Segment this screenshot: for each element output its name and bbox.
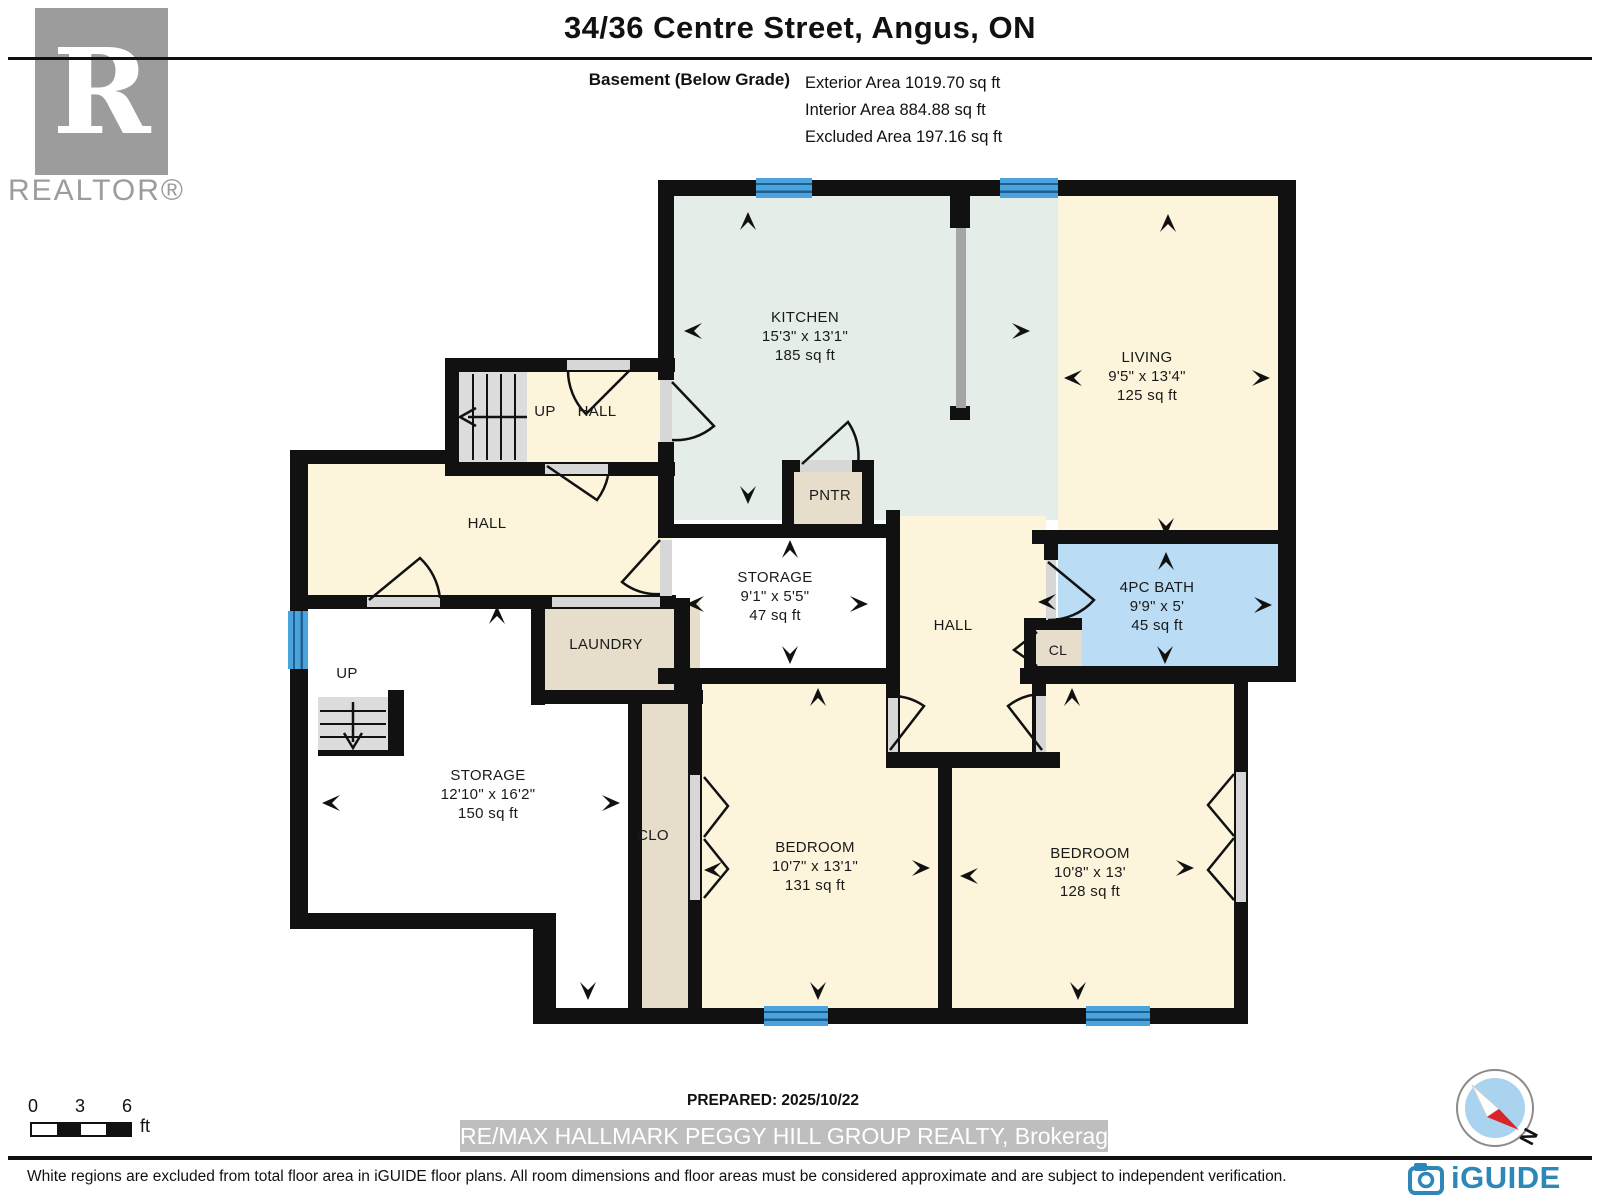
room-label-hall-central: HALL <box>893 616 1013 635</box>
room-label-hall-main: HALL <box>427 514 547 533</box>
room-label-storage-large: STORAGE 12'10" x 16'2" 150 sq ft <box>408 766 568 823</box>
header-divider <box>8 57 1592 60</box>
room-label-laundry: LAUNDRY <box>546 635 666 654</box>
room-label-closet-small: CL <box>1028 641 1088 660</box>
room-label-storage-small: STORAGE 9'1" x 5'5" 47 sq ft <box>695 568 855 625</box>
iguide-camera-icon <box>1406 1160 1446 1196</box>
prepared-date: PREPARED: 2025/10/22 <box>628 1092 918 1110</box>
room-label-bath: 4PC BATH 9'9" x 5' 45 sq ft <box>1077 578 1237 635</box>
iguide-logo: iGUIDE <box>1406 1160 1561 1196</box>
label-stairs-lower-up: UP <box>317 664 377 683</box>
room-label-hall-upper: HALL <box>547 402 647 421</box>
brokerage-watermark: RE/MAX HALLMARK PEGGY HILL GROUP REALTY,… <box>460 1120 1108 1152</box>
floor-plan-page: R REALTOR® 34/36 Centre Street, Angus, O… <box>0 0 1600 1198</box>
room-label-closet-long: CLO <box>613 826 693 845</box>
room-label-kitchen: KITCHEN 15'3" x 13'1" 185 sq ft <box>725 308 885 365</box>
room-label-pantry: PNTR <box>770 486 890 505</box>
room-label-living: LIVING 9'5" x 13'4" 125 sq ft <box>1067 348 1227 405</box>
room-label-bedroom-right: BEDROOM 10'8" x 13' 128 sq ft <box>1010 844 1170 901</box>
iguide-logo-text: iGUIDE <box>1451 1160 1561 1196</box>
room-label-bedroom-left: BEDROOM 10'7" x 13'1" 131 sq ft <box>735 838 895 895</box>
